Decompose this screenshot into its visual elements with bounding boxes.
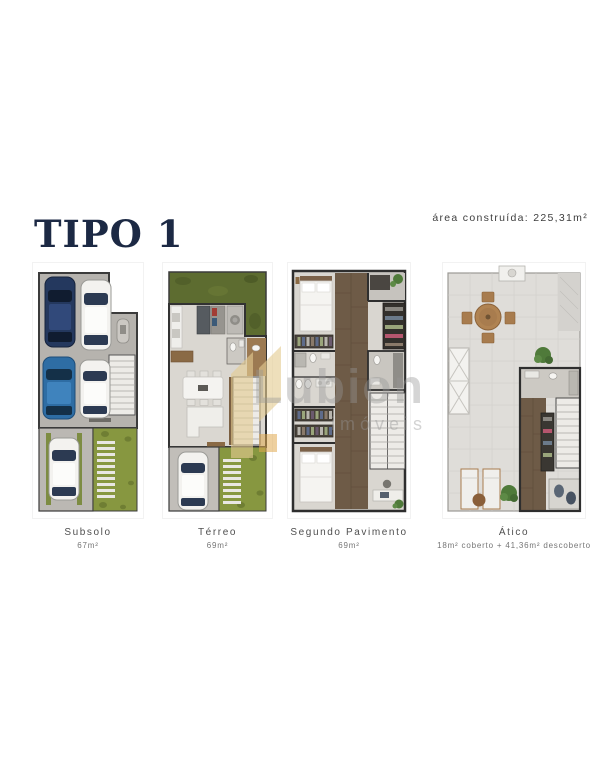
staircase <box>370 393 405 469</box>
plan-caption-segundo-pavimento: Segundo Pavimento 69m² <box>269 527 429 550</box>
kitchen-counter <box>171 306 182 348</box>
kitchen-appliances <box>197 306 225 334</box>
car-white-3 <box>49 438 79 500</box>
balcony <box>368 273 405 301</box>
bar-unit <box>541 413 554 471</box>
stair-wall <box>229 377 233 445</box>
laundry-machine <box>227 306 243 334</box>
floorplan-subsolo <box>33 263 143 518</box>
plan-caption-terreo: Térreo 69m² <box>157 527 278 550</box>
staircase <box>556 398 580 468</box>
dining-table <box>183 371 223 406</box>
bar-counter <box>171 351 193 362</box>
motorcycle <box>117 319 129 343</box>
segundo-pavimento-plan-graphic <box>288 263 410 518</box>
bed-2 <box>300 447 332 502</box>
plan-name-label: Térreo <box>157 527 278 538</box>
wardrobe <box>295 335 333 348</box>
car-white <box>178 452 208 510</box>
service-deck <box>247 338 266 376</box>
plan-name-label: Ático <box>424 527 604 538</box>
bathroom <box>227 338 245 364</box>
subsolo-plan-graphic <box>33 263 143 518</box>
car-blue <box>43 357 75 419</box>
plan-name-label: Subsolo <box>28 527 148 538</box>
floorplan-segundo-pavimento <box>288 263 410 518</box>
plan-area-label: 18m² coberto + 41,36m² descoberto <box>424 541 604 550</box>
staircase <box>109 355 135 415</box>
bench <box>89 418 111 422</box>
utility-closet <box>383 303 405 349</box>
floorplan-sheet: TIPO 1 área construída: 225,31m² <box>0 0 614 768</box>
plan-area-label: 69m² <box>269 541 429 550</box>
plan-caption-subsolo: Subsolo 67m² <box>28 527 148 550</box>
nightstand <box>296 277 300 284</box>
attic-sofa <box>549 479 580 509</box>
staircase <box>233 377 260 445</box>
plan-caption-atico: Ático 18m² coberto + 41,36m² descoberto <box>424 527 604 550</box>
hallway-wood <box>335 273 368 509</box>
terreo-plan-graphic <box>163 263 272 518</box>
page-title: TIPO 1 <box>34 212 184 256</box>
bed-1 <box>300 276 332 331</box>
roof-edge <box>558 273 580 331</box>
plan-name-label: Segundo Pavimento <box>269 527 429 538</box>
built-area-note: área construída: 225,31m² <box>432 212 588 224</box>
atico-plan-graphic <box>443 263 585 518</box>
bathroom-3 <box>368 351 405 390</box>
plan-area-label: 67m² <box>28 541 148 550</box>
car-navy <box>45 277 75 347</box>
chimney-box <box>499 266 525 281</box>
plan-area-label: 69m² <box>157 541 278 550</box>
floorplan-terreo <box>163 263 272 518</box>
pouf <box>473 494 486 507</box>
car-white-1 <box>81 280 111 350</box>
floorplan-atico <box>443 263 585 518</box>
attic-bathroom <box>520 368 580 398</box>
car-white-2 <box>80 360 110 418</box>
pergola <box>449 348 469 414</box>
